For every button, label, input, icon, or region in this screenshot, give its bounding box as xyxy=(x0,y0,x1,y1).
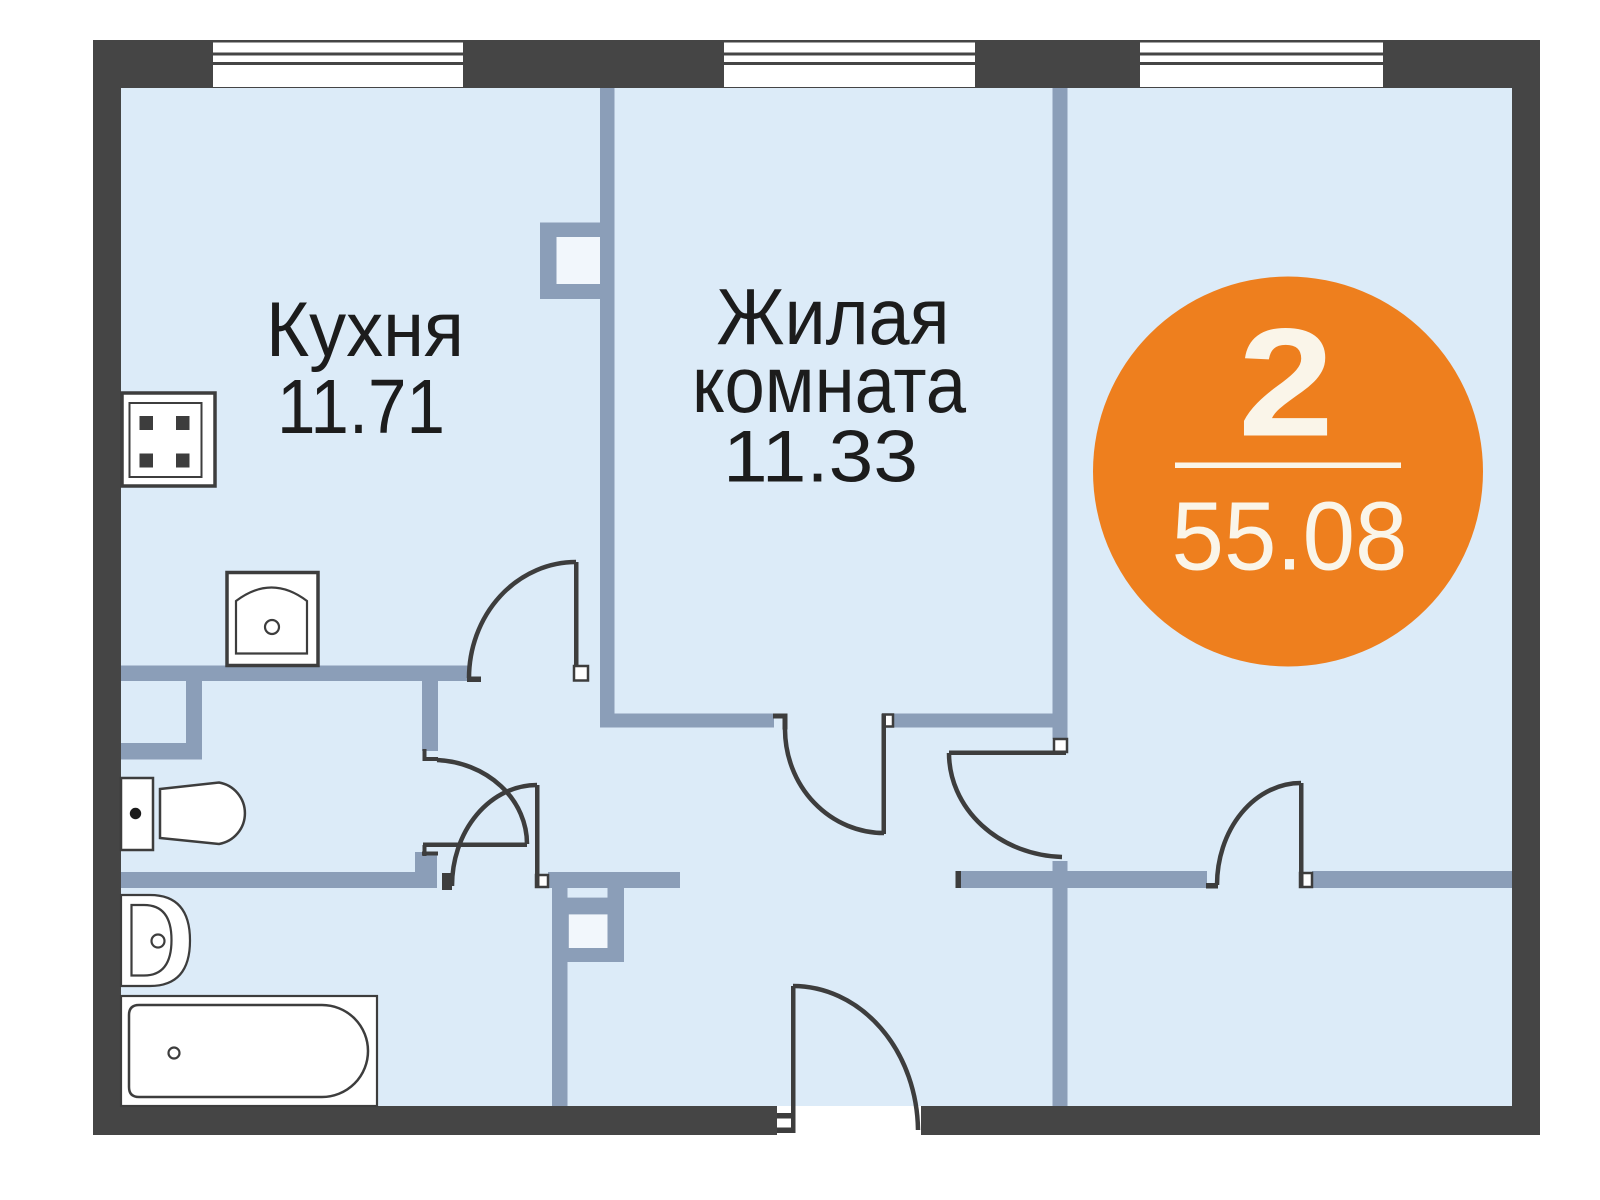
svg-text:11.71: 11.71 xyxy=(277,364,445,450)
svg-text:Кухня: Кухня xyxy=(266,285,464,373)
svg-text:55.08: 55.08 xyxy=(1172,482,1408,591)
svg-text:2: 2 xyxy=(1238,297,1334,469)
svg-text:11.33: 11.33 xyxy=(723,417,918,498)
